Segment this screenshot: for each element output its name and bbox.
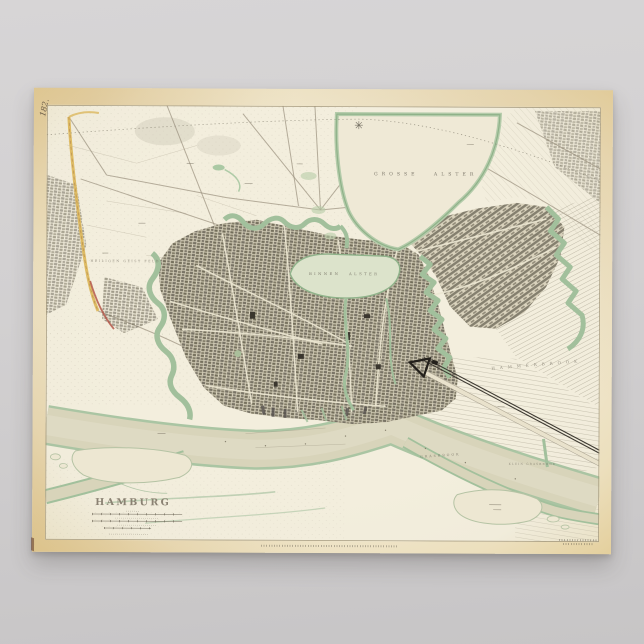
imprint-line: [261, 545, 397, 547]
map-plate: GROSSE ALSTER BINNEN ALSTER HAMMERBROOK …: [45, 105, 601, 542]
label-grosse-alster: GROSSE ALSTER: [374, 171, 477, 177]
label-klein-grasbrook: KLEIN GRASBROOK: [509, 462, 557, 466]
engraver-imprint: [559, 539, 597, 541]
map-svg: GROSSE ALSTER BINNEN ALSTER HAMMERBROOK …: [45, 105, 601, 542]
engraver-imprint-line2: [563, 543, 593, 545]
compass-star-icon: [355, 121, 363, 129]
label-binnen-alster: BINNEN ALSTER: [309, 271, 379, 276]
map-title: HAMBURG: [95, 497, 171, 508]
label-heiligen-geist-feld: HEILIGEN GEIST FELD: [91, 259, 161, 263]
photo-backdrop: 182.: [0, 0, 644, 644]
map-poster: 182.: [32, 88, 613, 555]
poster-corner-shadow: [31, 537, 34, 551]
